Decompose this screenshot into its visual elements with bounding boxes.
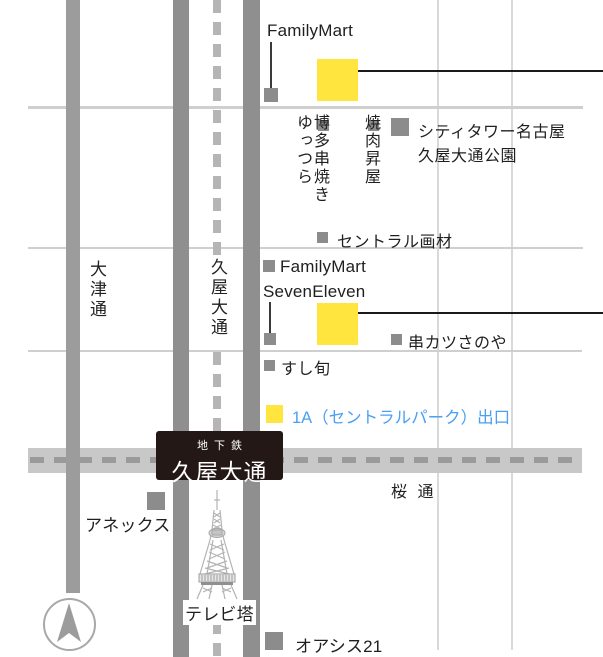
poi-label-kushikatsu-sanoya: 串カツさのや bbox=[408, 329, 507, 353]
highlighted-building-south bbox=[317, 303, 358, 345]
poi-label-central-gazai: セントラル画材 bbox=[337, 228, 453, 252]
street-label-sakura-dori: 桜 通 bbox=[391, 478, 436, 502]
access-map: FamilyMart シティタワー名古屋 久屋大通公園 博多串焼き ゆっつら 焼… bbox=[0, 0, 603, 657]
subway-line-vertical-dashes-upper bbox=[213, 0, 221, 431]
station-box-hisaya-odori: 地下鉄 久屋大通 bbox=[156, 431, 283, 480]
poi-marker-city-tower bbox=[391, 118, 409, 136]
poi-marker-seven-eleven bbox=[264, 333, 276, 345]
hisaya-odori-road-east bbox=[243, 0, 260, 657]
city-tower-line2: 久屋大通公園 bbox=[418, 148, 517, 165]
subway-line-vertical-dashes-lower bbox=[213, 621, 221, 657]
poi-label-yakiniku-shoya: 焼肉昇屋 bbox=[362, 114, 379, 186]
tv-tower-illustration bbox=[192, 488, 242, 600]
poi-label-tv-tower: テレビ塔 bbox=[183, 600, 256, 625]
subway-line-horizontal-dashes bbox=[30, 457, 580, 463]
poi-label-seven-eleven: SevenEleven bbox=[263, 282, 365, 302]
otsu-dori-road bbox=[66, 0, 80, 593]
poi-label-annex: アネックス bbox=[85, 511, 171, 536]
poi-marker-familymart-north bbox=[264, 88, 278, 102]
poi-marker-kushikatsu-sanoya bbox=[391, 334, 402, 345]
poi-marker-oasis21 bbox=[265, 632, 283, 650]
poi-label-familymart-south: FamilyMart bbox=[280, 257, 366, 277]
leader-line-south-building bbox=[358, 312, 603, 314]
north-compass bbox=[43, 598, 96, 651]
poi-marker-annex bbox=[147, 492, 165, 510]
legend-exit-label: 1A（セントラルパーク）出口 bbox=[292, 404, 510, 428]
poi-marker-familymart-south bbox=[263, 260, 275, 272]
hakata-line2: ゆっつら bbox=[294, 114, 311, 204]
station-name-label: 久屋大通 bbox=[156, 453, 283, 487]
poi-label-city-tower: シティタワー名古屋 久屋大通公園 bbox=[418, 118, 566, 166]
hisaya-odori-road-west bbox=[173, 0, 189, 657]
city-tower-line1: シティタワー名古屋 bbox=[418, 124, 566, 141]
poi-label-hakata-kushiyaki: 博多串焼き ゆっつら bbox=[294, 114, 328, 204]
minor-street-vertical-1 bbox=[437, 0, 439, 650]
legend-exit-swatch bbox=[266, 405, 283, 423]
hakata-line1: 博多串焼き bbox=[311, 114, 328, 204]
minor-street-vertical-2 bbox=[511, 0, 513, 650]
poi-label-sushi-shun: すし旬 bbox=[281, 355, 331, 379]
highlighted-building-north bbox=[317, 59, 358, 101]
minor-street-horizontal-1 bbox=[28, 106, 583, 109]
station-subway-label: 地下鉄 bbox=[156, 437, 283, 453]
leader-line-familymart-north bbox=[270, 42, 272, 88]
poi-marker-central-gazai bbox=[317, 232, 328, 243]
street-label-otsu-dori: 大津通 bbox=[84, 260, 109, 320]
poi-label-oasis21: オアシス21 bbox=[295, 632, 382, 657]
poi-marker-sushi-shun bbox=[264, 360, 275, 371]
street-label-hisaya-odori: 久屋大通 bbox=[204, 256, 231, 346]
poi-label-familymart-north: FamilyMart bbox=[267, 21, 353, 41]
minor-street-horizontal-2 bbox=[28, 247, 583, 249]
leader-line-north-building bbox=[358, 70, 603, 72]
leader-line-seven-eleven bbox=[269, 302, 271, 333]
north-arrow-icon bbox=[45, 600, 93, 648]
